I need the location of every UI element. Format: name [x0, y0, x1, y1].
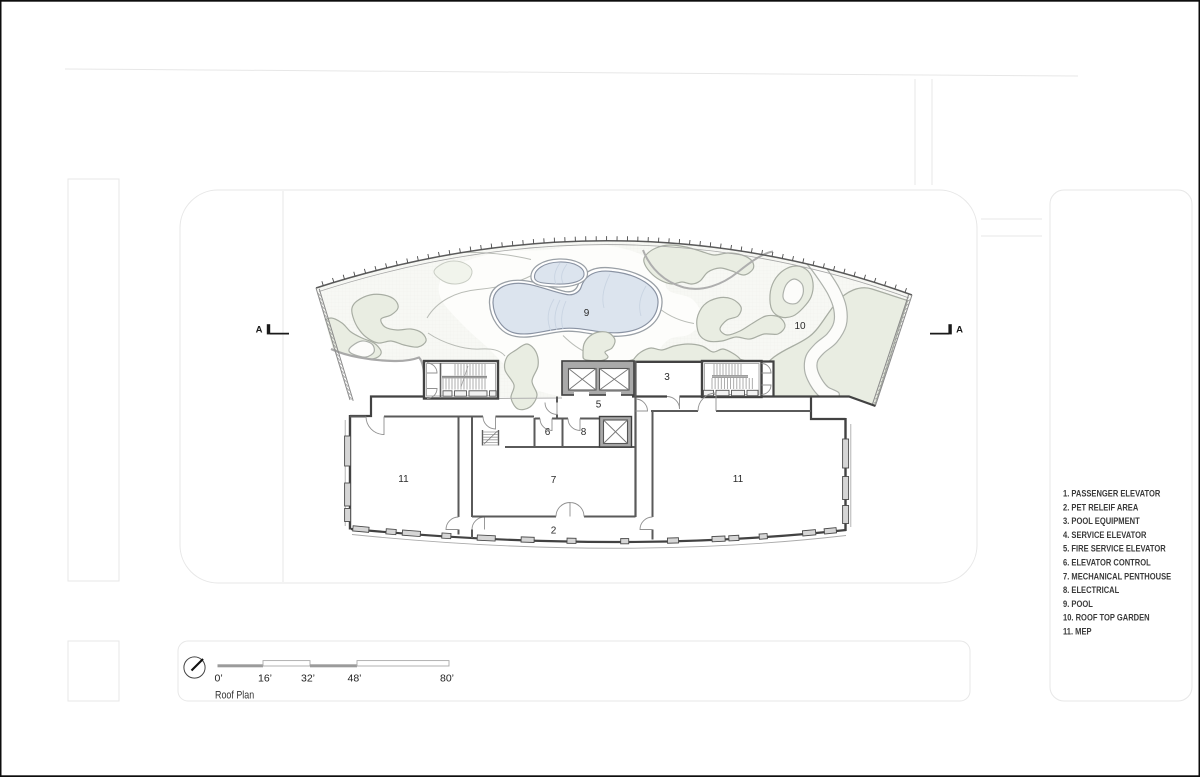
svg-text:7: 7: [551, 475, 557, 486]
svg-text:1. PASSENGER ELEVATOR: 1. PASSENGER ELEVATOR: [1063, 489, 1160, 499]
svg-text:2: 2: [551, 526, 557, 537]
svg-text:4. SERVICE ELEVATOR: 4. SERVICE ELEVATOR: [1063, 530, 1146, 540]
svg-text:5: 5: [596, 400, 602, 411]
svg-text:80’: 80’: [440, 673, 454, 685]
svg-text:16’: 16’: [258, 673, 272, 685]
svg-text:8. ELECTRICAL: 8. ELECTRICAL: [1063, 586, 1119, 596]
svg-text:6: 6: [545, 427, 551, 438]
svg-text:9. POOL: 9. POOL: [1063, 599, 1093, 609]
svg-text:3. POOL EQUIPMENT: 3. POOL EQUIPMENT: [1063, 517, 1140, 527]
svg-text:3: 3: [664, 372, 670, 383]
svg-text:8: 8: [581, 427, 587, 438]
svg-text:0’: 0’: [215, 673, 223, 685]
svg-text:A: A: [256, 325, 263, 336]
svg-text:5. FIRE SERVICE ELEVATOR: 5. FIRE SERVICE ELEVATOR: [1063, 544, 1166, 554]
svg-text:11: 11: [733, 474, 744, 485]
svg-text:6. ELEVATOR CONTROL: 6. ELEVATOR CONTROL: [1063, 558, 1151, 568]
svg-text:11. MEP: 11. MEP: [1063, 627, 1092, 637]
svg-text:10: 10: [794, 321, 806, 332]
svg-text:2. PET RELEIF AREA: 2. PET RELEIF AREA: [1063, 503, 1138, 513]
svg-text:10. ROOF TOP GARDEN: 10. ROOF TOP GARDEN: [1063, 613, 1150, 623]
svg-text:9: 9: [584, 308, 590, 319]
svg-text:48’: 48’: [348, 673, 362, 685]
svg-text:32’: 32’: [301, 673, 315, 685]
svg-text:7. MECHANICAL PENTHOUSE: 7. MECHANICAL PENTHOUSE: [1063, 572, 1172, 582]
svg-text:Roof Plan: Roof Plan: [215, 690, 254, 702]
svg-text:A: A: [956, 325, 963, 336]
svg-text:11: 11: [398, 474, 409, 485]
